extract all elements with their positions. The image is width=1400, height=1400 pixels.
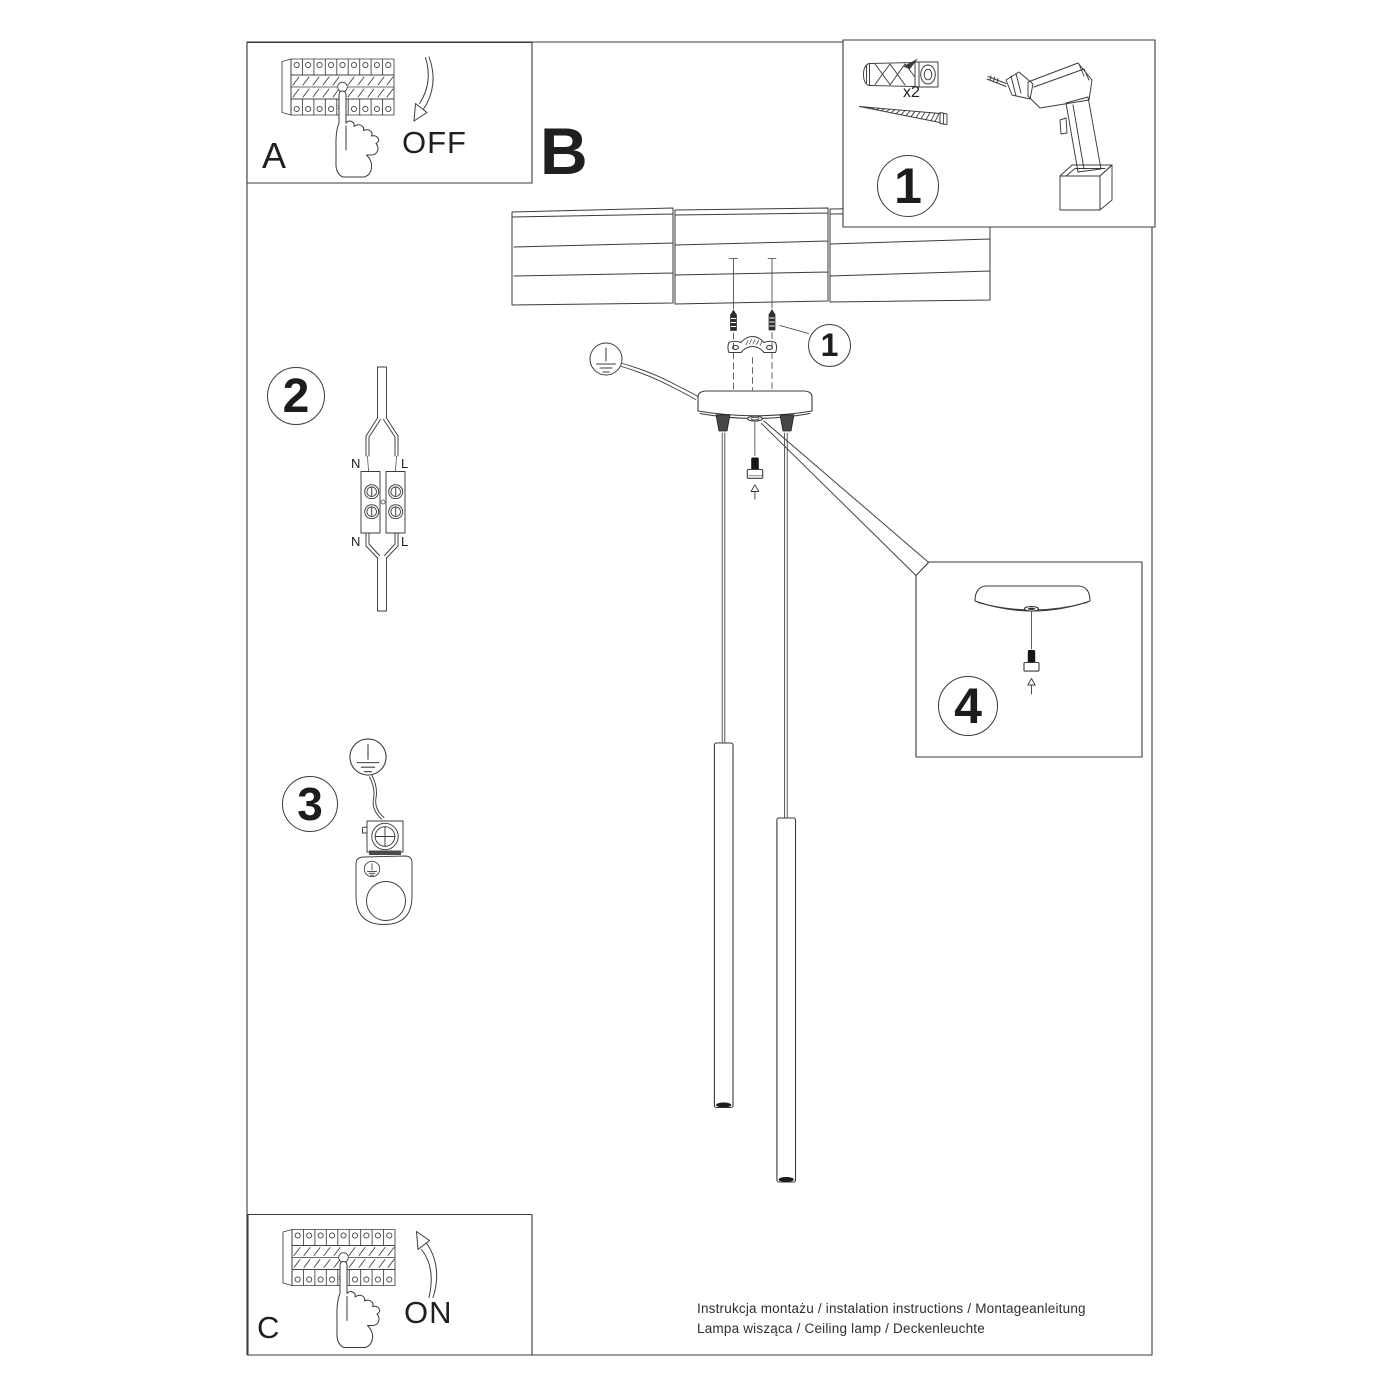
step-a-label: A [262, 138, 286, 174]
step-c-label: C [257, 1312, 279, 1343]
earth-symbol-small-icon [364, 861, 379, 876]
locking-screw [747, 423, 762, 500]
on-label: ON [404, 1297, 453, 1328]
footer-line-2: Lampa wisząca / Ceiling lamp / Deckenleu… [697, 1319, 1086, 1339]
pendant-tube-left [714, 743, 733, 1108]
screw-quantity-label: x2 [903, 85, 920, 101]
footer-line-1: Instrukcja montażu / instalation instruc… [697, 1299, 1086, 1319]
earth-symbol-icon [350, 739, 386, 775]
instruction-sheet: A OFF B C ON x2 1 1 2 3 4 N L N L Instru… [0, 0, 1400, 1400]
screw-up-right-icon [769, 309, 775, 330]
ground-wire [622, 364, 699, 400]
pendant-tube-right [777, 818, 796, 1182]
terminal-screws [365, 485, 403, 519]
instruction-drawing [0, 0, 1400, 1400]
callout-1-screws: 1 [808, 324, 851, 367]
callout-leader-screws [780, 326, 809, 334]
breaker-on-box [248, 1215, 532, 1356]
mounting-screws [730, 259, 777, 391]
earth-symbol-icon [590, 343, 622, 375]
cord-grip-left-icon [716, 415, 730, 431]
callout-4-canopy-detail: 4 [938, 676, 998, 736]
step-b-label: B [540, 118, 588, 184]
parts-box-number: 1 [877, 155, 939, 217]
wire-label-n-top: N [351, 457, 360, 470]
off-label: OFF [402, 127, 467, 158]
footer-caption: Instrukcja montażu / instalation instruc… [697, 1299, 1086, 1338]
screw-up-left-icon [731, 310, 737, 331]
wire-label-n-bottom: N [351, 535, 360, 548]
wire-label-l-bottom: L [401, 535, 408, 548]
arrow-up-small-icon [751, 485, 759, 499]
wiring-diagram [361, 367, 405, 611]
wire-label-l-top: L [401, 457, 408, 470]
grounding-diagram [350, 739, 412, 925]
cord-grip-right-icon [780, 415, 794, 431]
callout-2-wiring: 2 [267, 367, 325, 425]
mounting-bracket [728, 337, 777, 353]
breaker-off-box [247, 43, 532, 184]
callout-3-grounding: 3 [282, 776, 338, 832]
